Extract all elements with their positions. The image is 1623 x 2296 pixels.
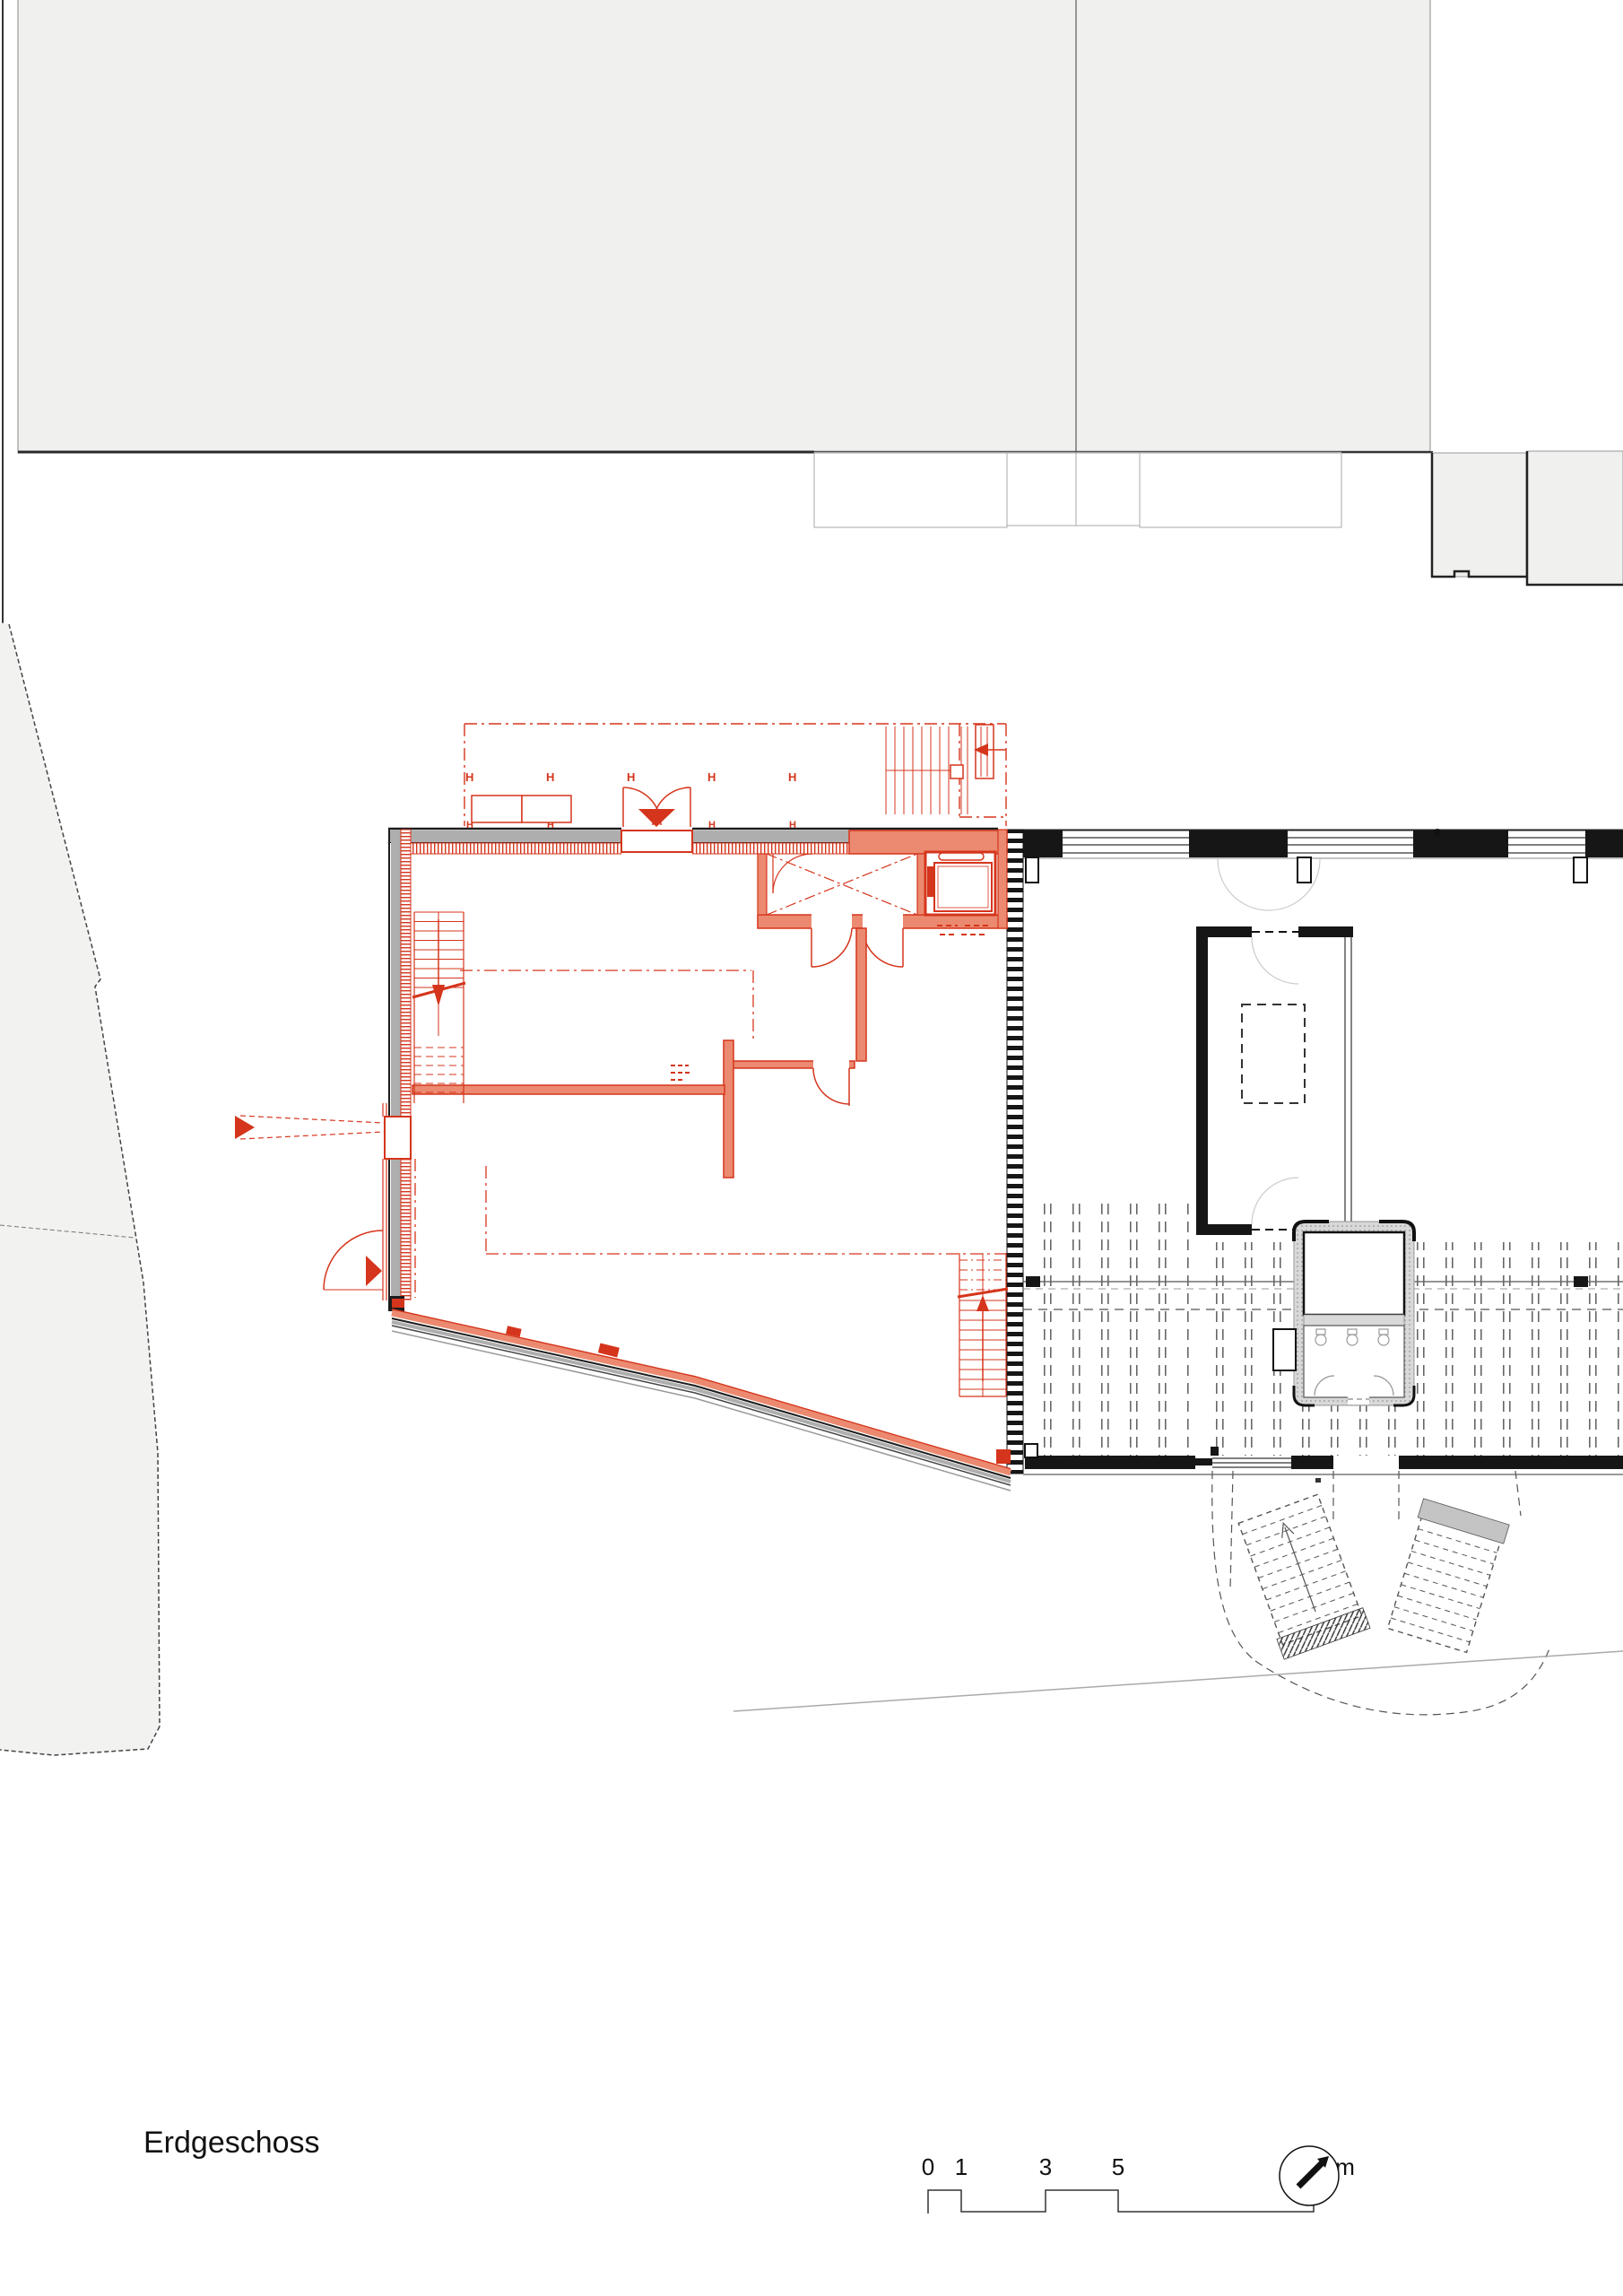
core-side-box: [1273, 1329, 1296, 1370]
shaft-room: [758, 854, 925, 915]
north-facade: [1023, 829, 1623, 910]
floor-label: Erdgeschoss: [143, 2126, 320, 2160]
external-stairs-dashed: [1212, 1471, 1549, 1715]
column-marker-h: H: [627, 770, 635, 784]
column-fin: [1574, 857, 1587, 883]
threshold-marks: [671, 1065, 692, 1080]
wall-v1: [724, 1040, 733, 1178]
canopy-furniture: [472, 796, 571, 822]
floor-plan-drawing: H H H H H H H H H: [0, 0, 1623, 2296]
street-parcel: [0, 622, 160, 1755]
facade-vent-dot: [1434, 829, 1441, 836]
entrance-arrow: [638, 809, 675, 827]
party-wall: [1007, 830, 1023, 1474]
neighbor-inset-courtyards: [814, 453, 1341, 527]
neighbor-block-right-1: [1432, 453, 1526, 577]
stair-southeast: [958, 1253, 1008, 1396]
site-boundary-line: [733, 1651, 1623, 1711]
upper-floor-dashdot: [415, 970, 1006, 1298]
column-fin: [1298, 857, 1311, 883]
h2-door: [813, 1068, 849, 1106]
north-arrow-icon: [1280, 2146, 1339, 2205]
ramp-dashed-arrow: [235, 1116, 384, 1139]
core-room-wc: [1304, 1326, 1404, 1397]
column-marker-h: H: [708, 820, 716, 831]
stair-west: [412, 912, 465, 1103]
elevator-door: [939, 853, 984, 860]
scale-label-3: 3: [1039, 2153, 1052, 2180]
column-marker-h: H: [546, 770, 554, 784]
wall-v2: [856, 928, 866, 1061]
column-fin: [1026, 857, 1038, 883]
red-west-wall: [235, 830, 412, 1311]
core-room-upper: [1304, 1232, 1404, 1315]
wall-east: [998, 830, 1007, 928]
sanitary-core: [1273, 1222, 1414, 1405]
red-diagonal-wall: [392, 1309, 1011, 1491]
existing-building: [733, 829, 1623, 1715]
stair-flight-left: [1235, 1493, 1370, 1659]
wall-h1: [412, 1085, 725, 1094]
scale-label-1: 1: [955, 2153, 968, 2180]
scale-label-5: 5: [1112, 2153, 1124, 2180]
sheet-footer: Erdgeschoss 0 1 3 5 10 m: [143, 2126, 1355, 2213]
west-lower-door: [324, 1231, 383, 1290]
scale-label-0: 0: [922, 2153, 934, 2180]
neighbor-block-right-2: [1527, 451, 1623, 585]
courtyard-skylight-dashed: [1242, 1004, 1305, 1103]
column-marker-h: H: [789, 820, 796, 831]
column-marker-h: H: [707, 770, 716, 784]
entrance-door-threshold: [621, 831, 692, 852]
stair-direction-arrow: [432, 985, 445, 1006]
street-parcel-fill: [0, 622, 160, 1755]
stair-northeast: [886, 725, 1006, 814]
west-door-opening: [385, 1117, 411, 1159]
neighbor-block-large: [18, 0, 1430, 453]
stair-direction-arrow: [976, 1295, 989, 1311]
stair-flight-right: [1384, 1499, 1509, 1654]
floor-plan-sheet: H H H H H H H H H: [0, 0, 1623, 2296]
column-marker-h: H: [465, 770, 473, 784]
courtyard: [1196, 926, 1353, 1235]
column-marker-h: H: [788, 770, 796, 784]
neighbor-buildings: [0, 0, 1623, 955]
new-building-red: H H H H H H H H H: [235, 724, 1011, 1491]
